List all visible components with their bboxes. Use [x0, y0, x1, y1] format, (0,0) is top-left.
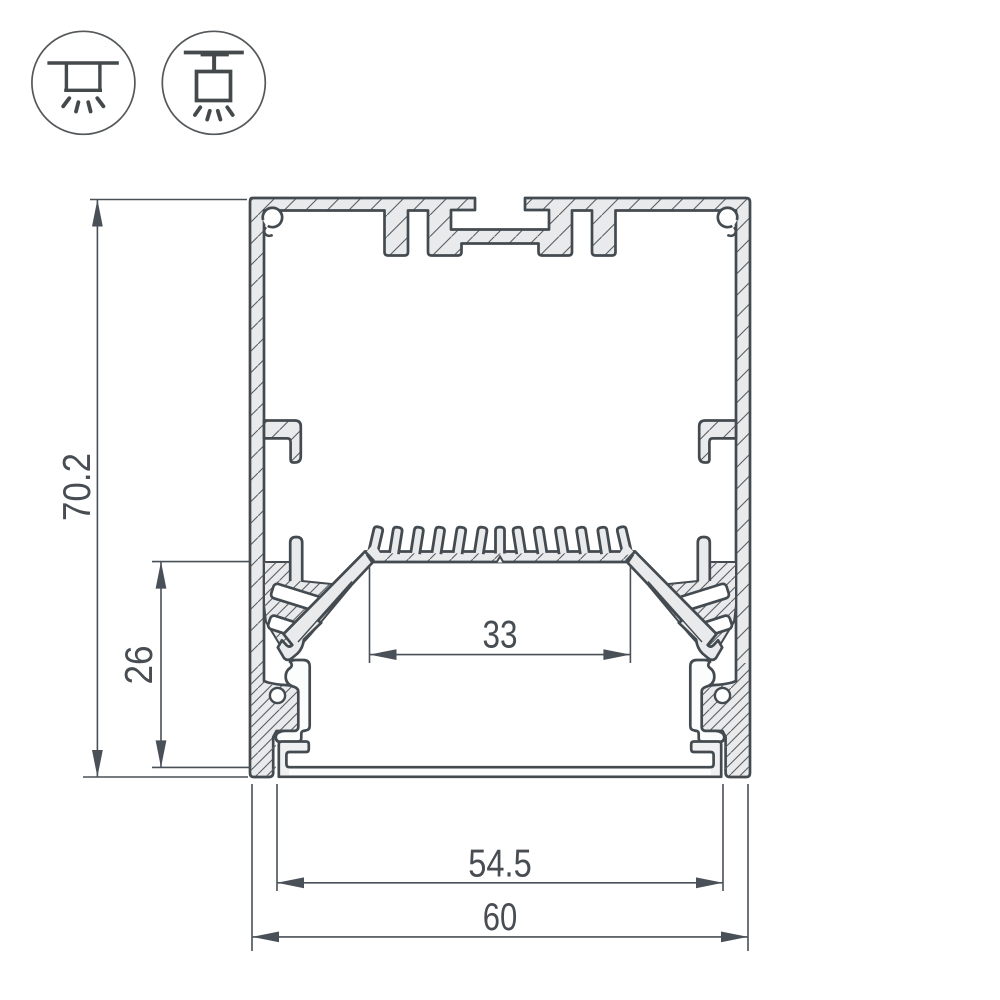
svg-text:26: 26	[118, 646, 161, 685]
svg-text:60: 60	[483, 896, 518, 939]
svg-text:70.2: 70.2	[56, 453, 99, 521]
svg-text:33: 33	[483, 614, 518, 657]
svg-text:54.5: 54.5	[468, 843, 532, 886]
